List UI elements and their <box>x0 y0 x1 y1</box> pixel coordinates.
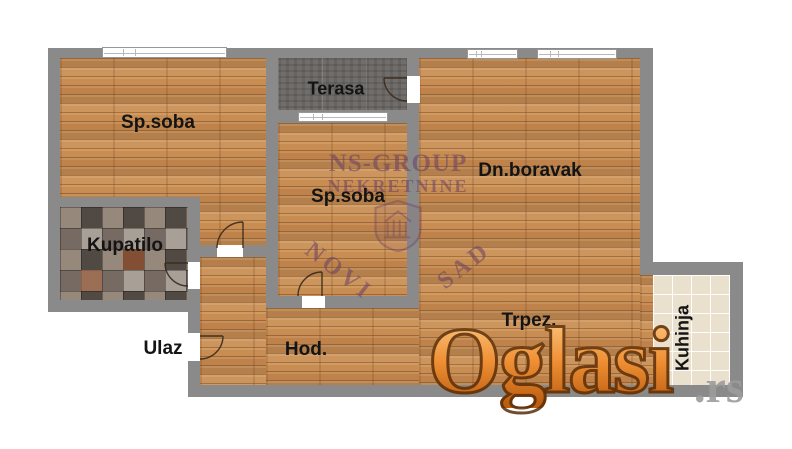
door-entrance-gap <box>184 333 200 361</box>
wall-bathroom-top <box>48 197 200 207</box>
window-bedroom-left <box>102 47 227 58</box>
site-watermark: Oglasi .rs <box>428 314 672 408</box>
entrance-label: Ulaz <box>143 338 182 360</box>
agency-name: NS-GROUP <box>318 150 478 178</box>
kitchen-label: Kuhinja <box>673 305 694 371</box>
wall-right <box>640 48 653 262</box>
floor-plan: Sp.soba Terasa Sp.soba Dn.boravak Kupati… <box>0 0 792 449</box>
wall-bedrooms-divider <box>266 48 278 308</box>
door-terrace-gap <box>407 76 420 103</box>
window-living-1 <box>467 49 518 59</box>
hallway-label: Hod. <box>285 339 327 361</box>
living-room-label: Dn.boravak <box>478 160 581 182</box>
agency-city: NOVI SAD <box>318 239 478 301</box>
bathroom-label: Kupatilo <box>87 235 163 257</box>
bedroom-left-label: Sp.soba <box>121 112 195 134</box>
window-living-2 <box>537 49 617 59</box>
bedroom-middle-label: Sp.soba <box>311 186 385 208</box>
site-watermark-tld: .rs <box>694 360 744 413</box>
wall-bathroom-bottom <box>48 300 200 312</box>
agency-watermark: NS-GROUP NEKRETNINE NOVI SAD <box>318 150 478 301</box>
wall-left <box>48 48 60 312</box>
wall-kitchen-top <box>640 262 743 275</box>
door-bathroom-gap <box>188 262 200 289</box>
hallway-floor-upper <box>200 257 266 385</box>
terrace-label: Terasa <box>308 79 365 100</box>
site-watermark-name: Oglasi <box>428 314 672 408</box>
door-bedroom-left-gap <box>217 245 243 257</box>
window-terrace <box>298 112 388 122</box>
